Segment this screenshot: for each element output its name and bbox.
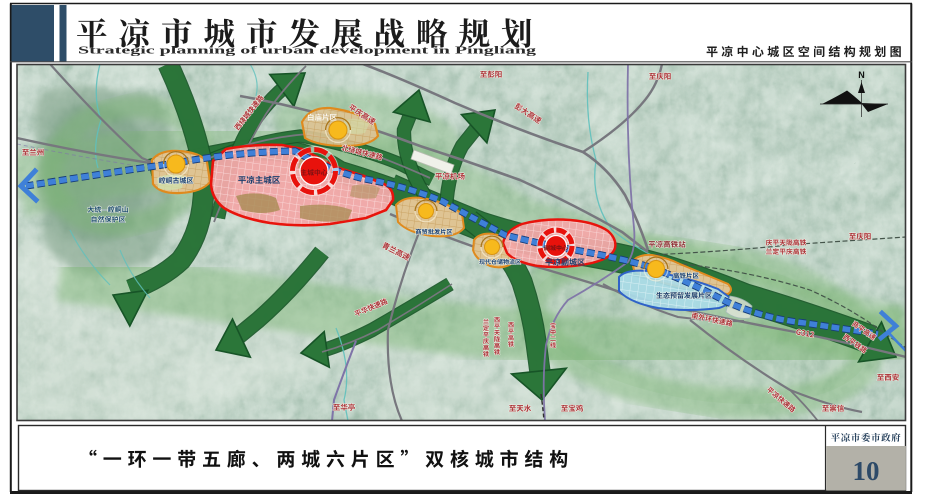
svg-text:Strategic planning of urban de: Strategic planning of urban development … <box>78 46 536 57</box>
svg-text:N: N <box>858 70 865 80</box>
svg-text:10: 10 <box>853 456 880 486</box>
